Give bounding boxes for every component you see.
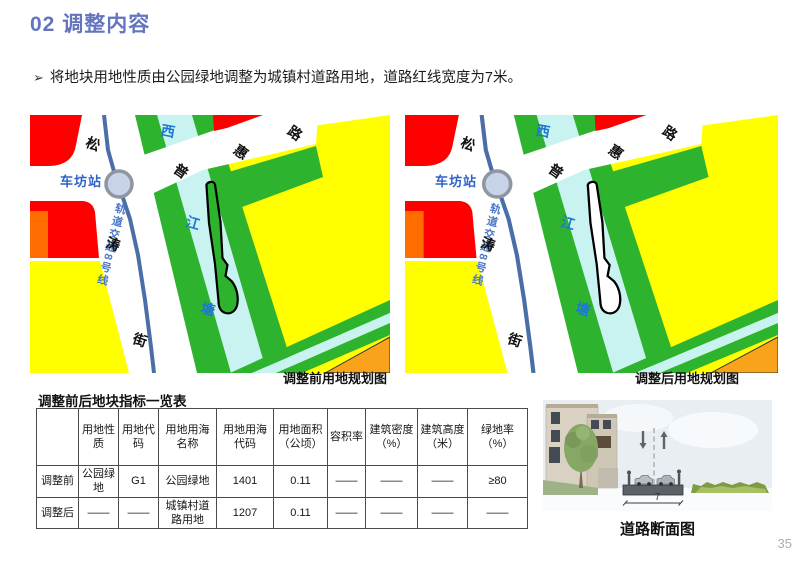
bullet-line: ➢将地块用地性质由公园绿地调整为城镇村道路用地，道路红线宽度为7米。 xyxy=(33,66,522,87)
header-cell xyxy=(37,409,79,466)
row-label: 调整前 xyxy=(37,466,79,498)
table-title: 调整前后地块指标一览表 xyxy=(38,390,187,410)
cell: —— xyxy=(366,497,418,529)
cell: —— xyxy=(468,497,528,529)
bullet-text: 将地块用地性质由公园绿地调整为城镇村道路用地，道路红线宽度为7米。 xyxy=(50,70,522,86)
cell: 0.11 xyxy=(274,497,328,529)
cell: 公园绿地 xyxy=(159,466,217,498)
bullet-arrow-icon: ➢ xyxy=(33,70,44,85)
cell: 城镇村道路用地 xyxy=(159,497,217,529)
cell: —— xyxy=(119,497,159,529)
river-label-1: 西 xyxy=(535,123,551,139)
road-section-figure: 7 xyxy=(543,400,772,511)
map-after-caption: 调整后用地规划图 xyxy=(592,368,782,387)
header-cell: 绿地率（%） xyxy=(468,409,528,466)
page-number: 35 xyxy=(762,536,792,551)
header-cell: 用地用海名称 xyxy=(159,409,217,466)
map-before: 车坊站 轨道交通8号线 松 涛 街 普 惠 路 西 江 塘 xyxy=(30,115,390,373)
low-wall xyxy=(598,468,618,488)
cell: —— xyxy=(366,466,418,498)
landuse-map-after xyxy=(405,115,778,373)
header-cell: 建筑高度（米） xyxy=(418,409,468,466)
row-label: 调整后 xyxy=(37,497,79,529)
landuse-map-before xyxy=(30,115,390,373)
station-label: 车坊站 xyxy=(60,175,102,188)
header-cell: 用地用海代码 xyxy=(217,409,274,466)
cell: —— xyxy=(328,497,366,529)
cell: 0.11 xyxy=(274,466,328,498)
cell: G1 xyxy=(119,466,159,498)
station-label: 车坊站 xyxy=(435,175,477,188)
table-header-row: 用地性质 用地代码 用地用海名称 用地用海代码 用地面积（公顷） 容积率 建筑密… xyxy=(37,409,528,466)
cell: —— xyxy=(418,466,468,498)
header-cell: 容积率 xyxy=(328,409,366,466)
header-cell: 用地代码 xyxy=(119,409,159,466)
header-cell: 用地性质 xyxy=(79,409,119,466)
cell: —— xyxy=(418,497,468,529)
slide: { "header": { "title": "02 调整内容" }, "bul… xyxy=(0,0,800,566)
river-label-1: 西 xyxy=(160,123,176,139)
cell: 1207 xyxy=(217,497,274,529)
table-row-before: 调整前 公园绿地 G1 公园绿地 1401 0.11 —— —— —— ≥80 xyxy=(37,466,528,498)
dimension-value: 7 xyxy=(543,492,772,503)
cell: —— xyxy=(79,497,119,529)
header-cell: 建筑密度（%） xyxy=(366,409,418,466)
cloud xyxy=(668,412,758,448)
table-row-after: 调整后 —— —— 城镇村道路用地 1207 0.11 —— —— —— —— xyxy=(37,497,528,529)
page-title: 02 调整内容 xyxy=(30,8,150,38)
header-cell: 用地面积（公顷） xyxy=(274,409,328,466)
map-before-caption: 调整前用地规划图 xyxy=(240,368,430,387)
cell: 公园绿地 xyxy=(79,466,119,498)
cell: —— xyxy=(328,466,366,498)
map-after: 车坊站 轨道交通8号线 松 涛 街 普 惠 路 西 江 塘 xyxy=(405,115,778,373)
cell: ≥80 xyxy=(468,466,528,498)
cell: 1401 xyxy=(217,466,274,498)
road-section-caption: 道路断面图 xyxy=(543,518,772,539)
indicator-table: 用地性质 用地代码 用地用海名称 用地用海代码 用地面积（公顷） 容积率 建筑密… xyxy=(36,408,528,529)
